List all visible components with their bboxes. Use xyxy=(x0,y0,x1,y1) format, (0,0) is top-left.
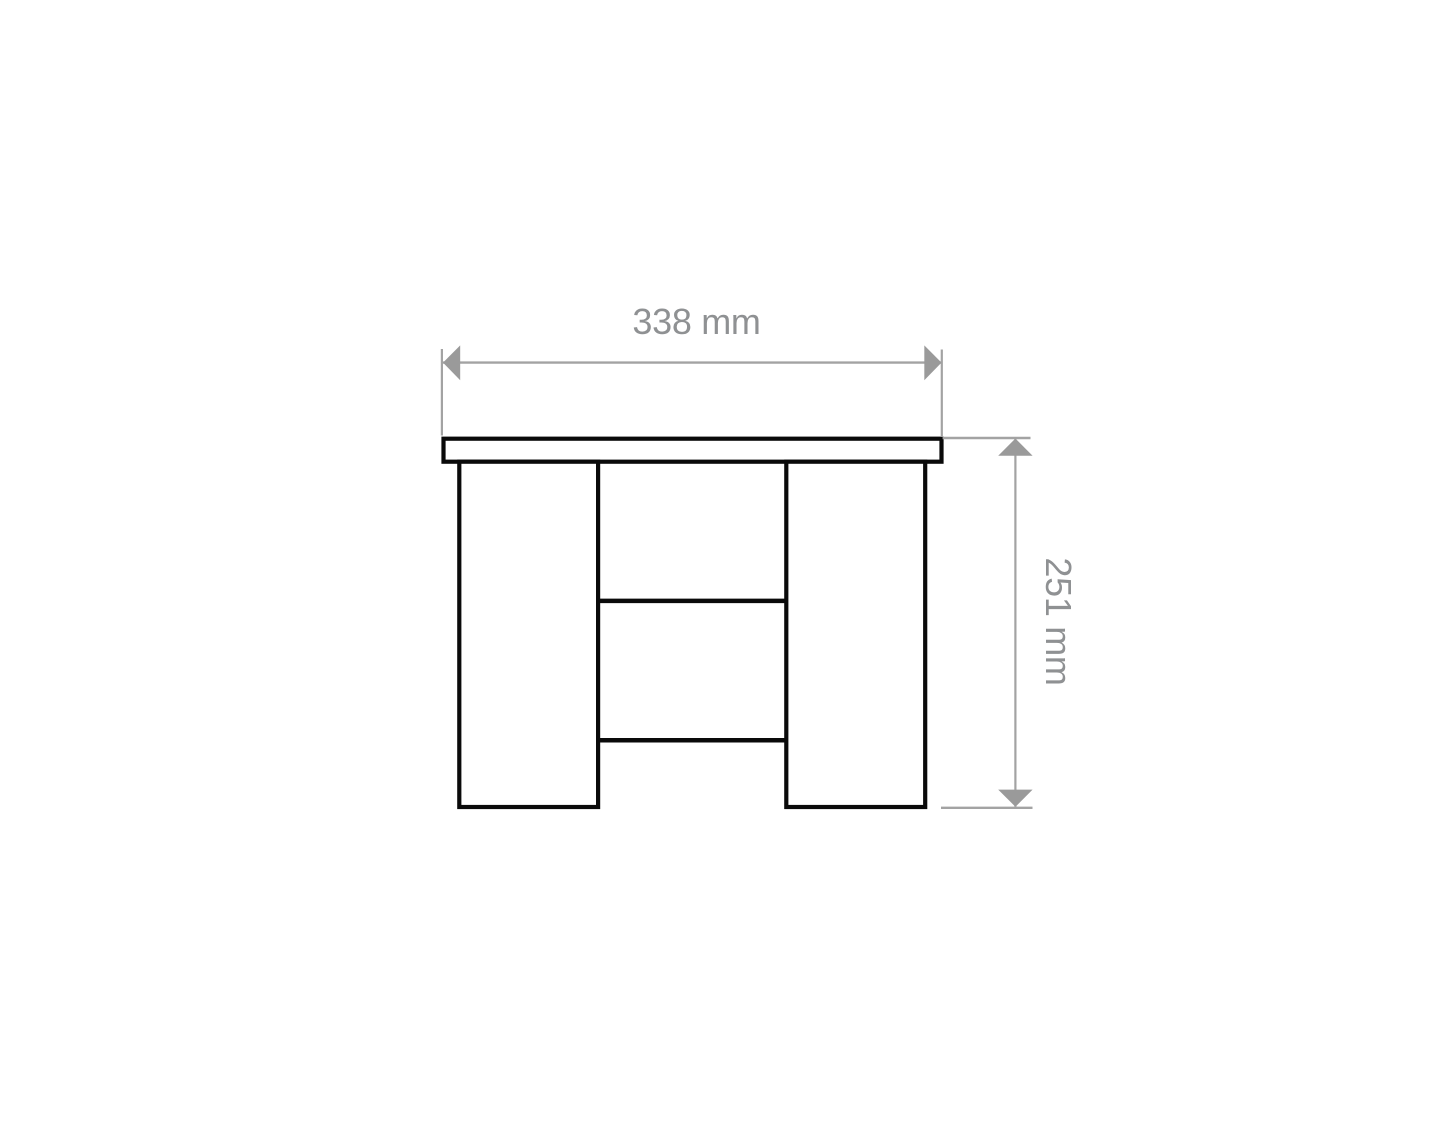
svg-text:251 mm: 251 mm xyxy=(1038,557,1079,685)
svg-text:338 mm: 338 mm xyxy=(632,301,760,342)
